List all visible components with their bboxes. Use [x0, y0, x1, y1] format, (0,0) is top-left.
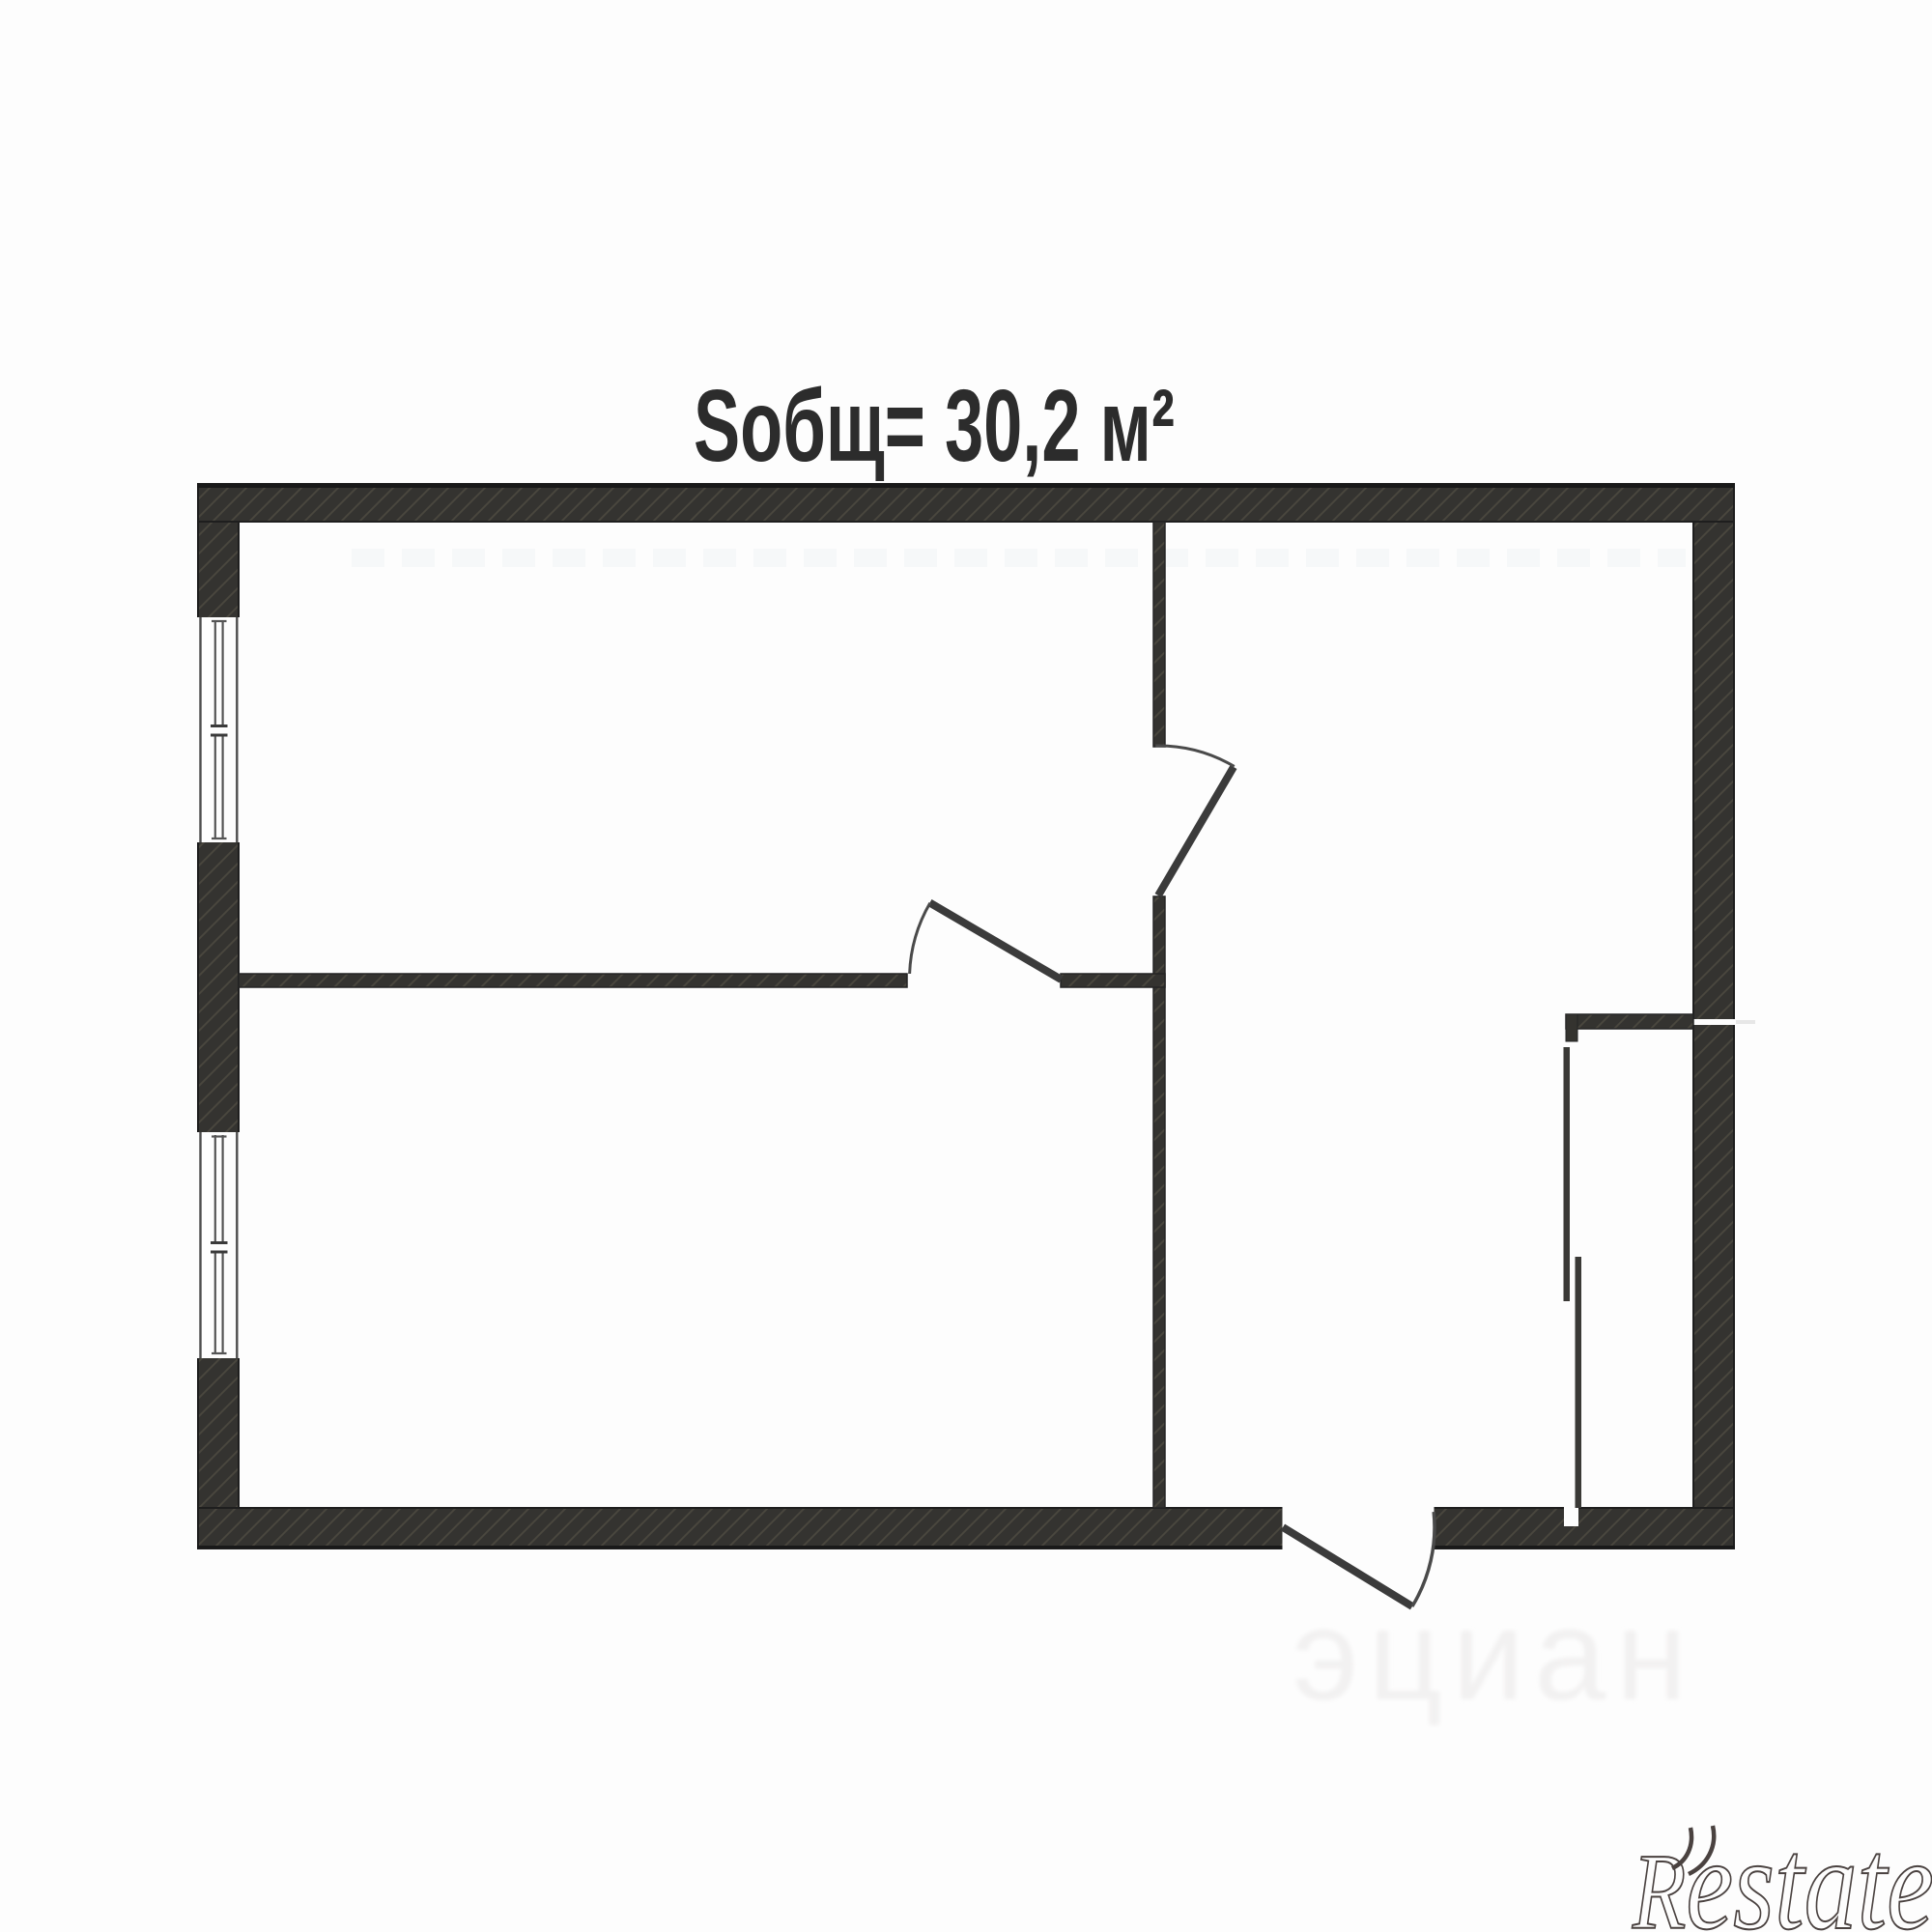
svg-text:Sобщ= 30,2 м²: Sобщ= 30,2 м²	[694, 369, 1175, 483]
svg-text:эциан: эциан	[1293, 1583, 1697, 1727]
